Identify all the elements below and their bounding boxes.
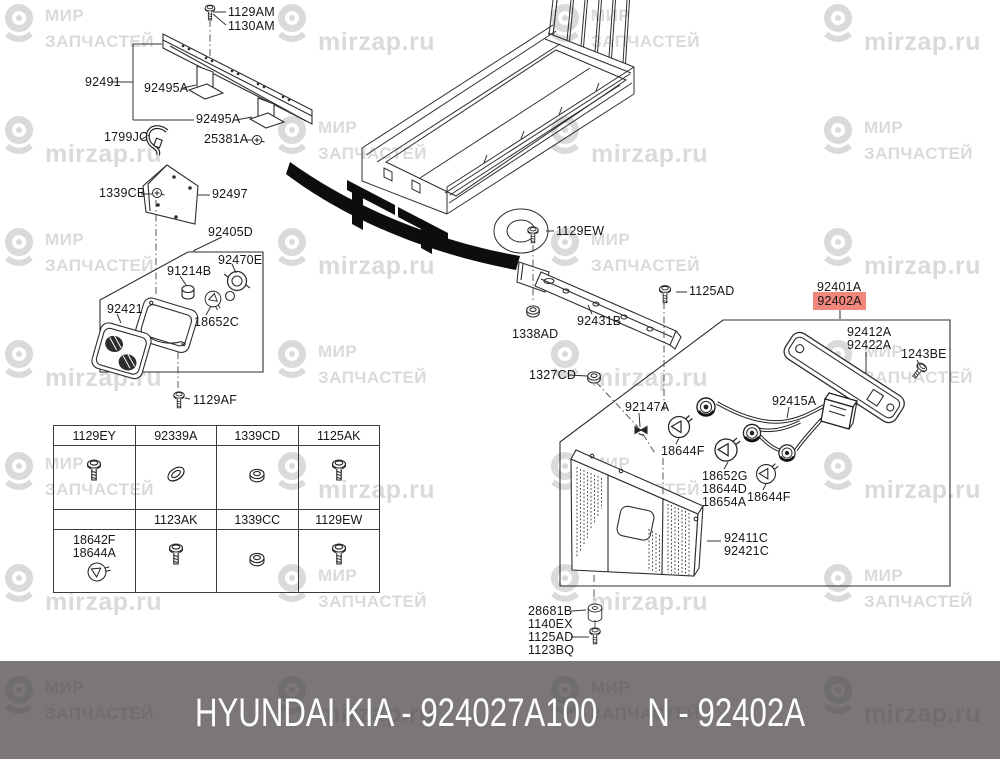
rear-bumper-bar-92491 — [163, 34, 312, 128]
clip-icon-92147a — [635, 427, 647, 436]
bulb-icon-18644f — [757, 464, 779, 484]
table-cell — [217, 530, 299, 593]
screw-icon-25381a — [253, 136, 265, 145]
part-label-18644a: 18644A — [73, 547, 116, 560]
bolt-icon — [169, 544, 182, 564]
nut-icon-1327cd — [588, 372, 601, 383]
retainer-clip-icon — [165, 464, 186, 483]
rear-combination-lamp-92411c — [571, 450, 703, 576]
socket-icon — [743, 424, 760, 441]
grommet-icon-91214b — [182, 286, 194, 300]
rear-wheel — [494, 209, 548, 253]
bolt-icon — [332, 460, 345, 480]
table-cell — [135, 530, 217, 593]
table-cell — [298, 446, 380, 510]
wire-hook-icon — [148, 127, 167, 155]
table-header-empty — [54, 510, 136, 530]
table-header: 1129EY — [54, 426, 136, 446]
nut-icon-1338ad — [527, 306, 540, 317]
bolt-icon — [88, 460, 101, 480]
nut-icon — [250, 469, 264, 481]
table-header: 1129EW — [298, 510, 380, 530]
socket-icon — [779, 445, 795, 461]
nut-icon — [250, 553, 264, 565]
screw-icon-1125ad — [659, 286, 670, 303]
mounting-bracket-92431b — [517, 262, 681, 349]
bulb-icon-18652c — [203, 290, 222, 311]
bushing-icon-28681b — [588, 604, 602, 622]
bulb-icon-18652g — [715, 438, 740, 461]
table-cell — [298, 530, 380, 593]
table-header: 1339CD — [217, 426, 299, 446]
table-cell — [217, 446, 299, 510]
table-header: 1339CC — [217, 510, 299, 530]
table-header: 1125AK — [298, 426, 380, 446]
table-cell — [54, 446, 136, 510]
bolt-icon — [332, 544, 345, 564]
table-cell: 18642F 18644A — [54, 530, 136, 593]
parts-table: 1129EY 92339A 1339CD 1125AK 1123AK 1339C… — [53, 425, 380, 593]
bulb-icon-18644f — [669, 416, 693, 438]
table-header: 92339A — [135, 426, 217, 446]
screw-icon-1129af — [174, 392, 184, 408]
wedge-bulb-icon — [85, 560, 111, 585]
footer-bar — [0, 661, 1000, 759]
socket-icon-92470e — [224, 272, 250, 301]
screw-icon-1125ad-2 — [590, 628, 600, 644]
license-lamp-assembly-92405d — [90, 252, 263, 381]
truck-bed-drawing — [286, 0, 634, 270]
table-cell — [135, 446, 217, 510]
location-swoosh — [286, 162, 520, 270]
table-header: 1123AK — [135, 510, 217, 530]
parts-catalog-page: МИРЗАПЧАСТЕЙmirzap.ruМИРЗАПЧАСТЕЙmirzap.… — [0, 0, 1000, 759]
socket-icon — [697, 398, 715, 416]
